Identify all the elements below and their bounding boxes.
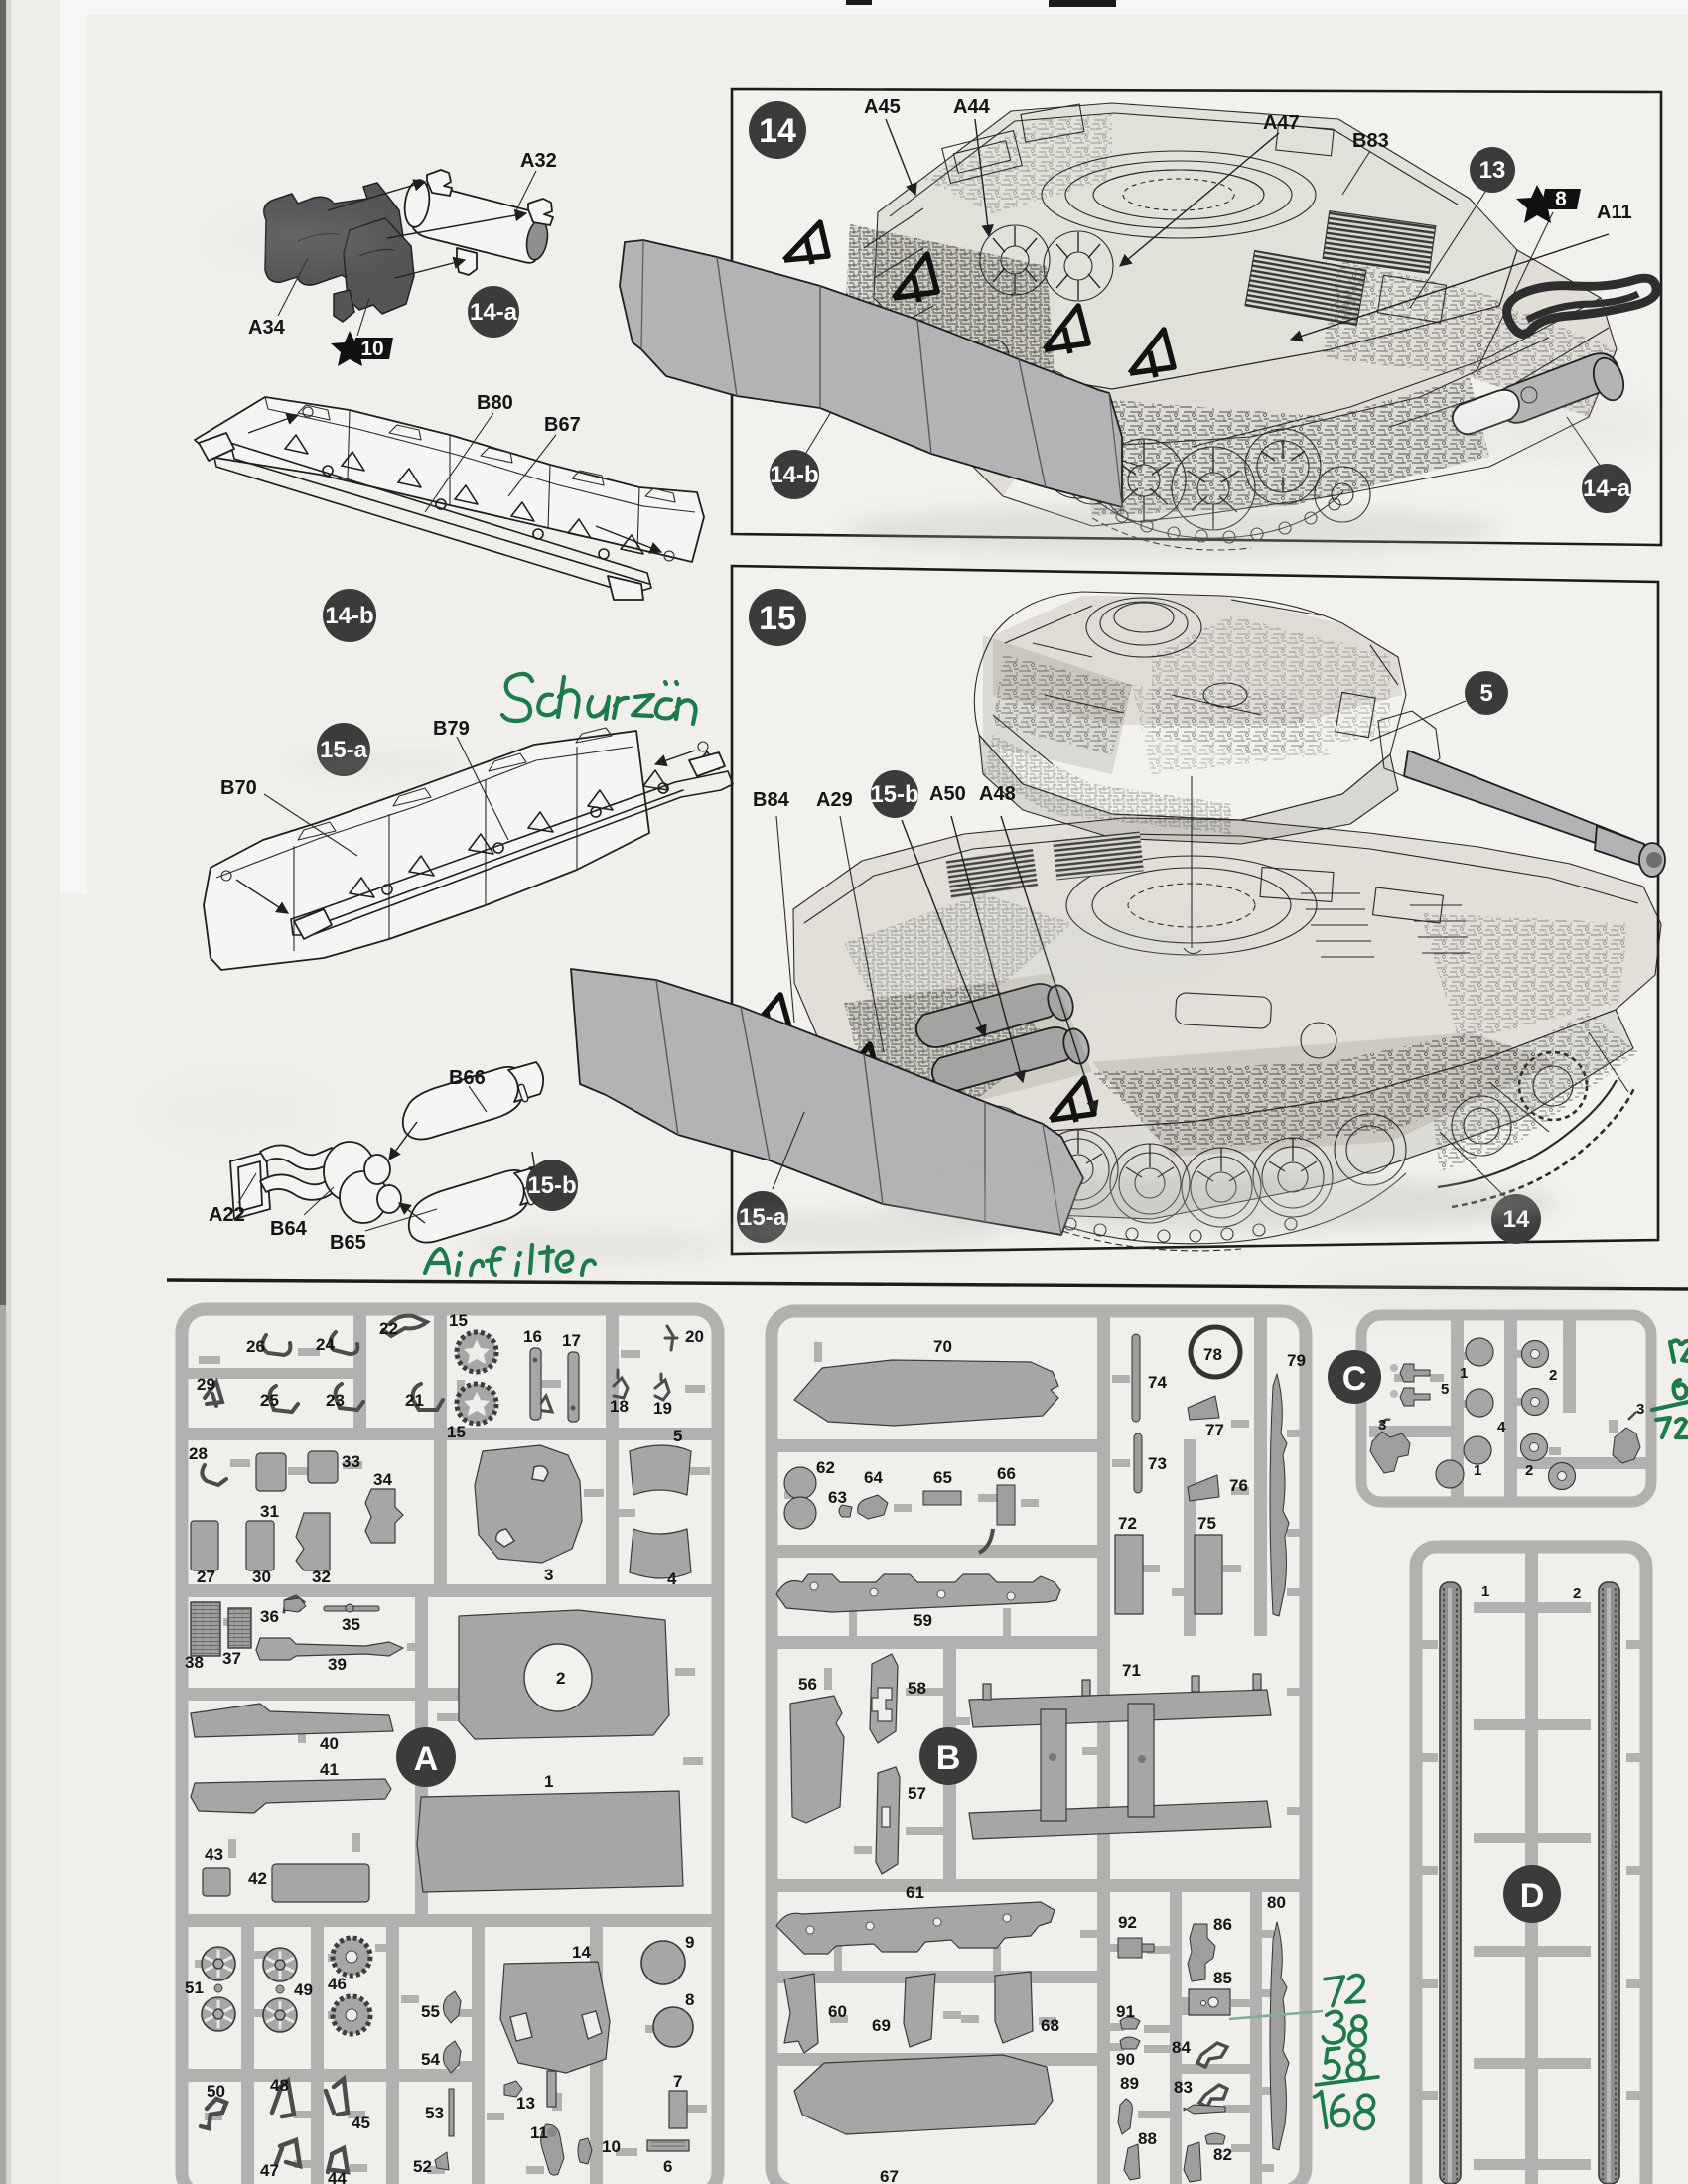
svg-text:57: 57 — [908, 1784, 926, 1803]
svg-text:77: 77 — [1205, 1421, 1224, 1439]
svg-text:2: 2 — [1573, 1585, 1581, 1602]
svg-text:B84: B84 — [753, 789, 790, 811]
svg-text:15: 15 — [759, 600, 796, 637]
svg-text:22: 22 — [379, 1319, 398, 1338]
svg-text:28: 28 — [189, 1444, 208, 1463]
svg-text:60: 60 — [828, 2002, 847, 2021]
svg-text:A11: A11 — [1597, 202, 1632, 223]
svg-text:42: 42 — [248, 1869, 267, 1888]
svg-text:88: 88 — [1138, 2129, 1157, 2148]
svg-text:67: 67 — [880, 2167, 899, 2184]
svg-text:A45: A45 — [864, 96, 901, 118]
svg-text:B65: B65 — [330, 1232, 366, 1254]
svg-text:52: 52 — [413, 2157, 432, 2176]
svg-text:68: 68 — [1041, 2016, 1059, 2035]
svg-text:4: 4 — [667, 1570, 677, 1588]
svg-text:32: 32 — [312, 1568, 331, 1586]
svg-text:82: 82 — [1213, 2145, 1232, 2164]
svg-text:10: 10 — [360, 338, 383, 360]
svg-text:61: 61 — [906, 1883, 924, 1902]
svg-text:15-b: 15-b — [527, 1172, 576, 1199]
svg-text:A29: A29 — [816, 789, 853, 811]
svg-text:35: 35 — [342, 1615, 360, 1634]
svg-text:B67: B67 — [544, 414, 581, 436]
svg-text:75: 75 — [1197, 1514, 1216, 1533]
svg-text:6: 6 — [663, 2157, 672, 2176]
svg-text:71: 71 — [1122, 1661, 1141, 1680]
svg-text:83: 83 — [1174, 2078, 1193, 2097]
svg-text:9: 9 — [685, 1933, 694, 1952]
svg-text:1: 1 — [1481, 1583, 1489, 1600]
svg-text:14-a: 14-a — [1583, 476, 1631, 502]
svg-text:A: A — [414, 1740, 439, 1778]
svg-text:53: 53 — [425, 2104, 444, 2122]
svg-text:15: 15 — [447, 1423, 466, 1441]
svg-text:36: 36 — [260, 1607, 279, 1626]
svg-text:14-a: 14-a — [470, 299, 518, 326]
svg-text:A50: A50 — [929, 783, 966, 805]
svg-text:16: 16 — [523, 1327, 542, 1346]
svg-text:2: 2 — [1549, 1367, 1557, 1384]
svg-text:4: 4 — [1497, 1419, 1506, 1435]
svg-text:3: 3 — [1636, 1401, 1644, 1418]
svg-text:76: 76 — [1229, 1476, 1248, 1495]
svg-text:79: 79 — [1287, 1351, 1306, 1370]
svg-text:B79: B79 — [433, 718, 470, 740]
svg-text:70: 70 — [933, 1337, 952, 1356]
svg-text:29: 29 — [197, 1375, 215, 1394]
svg-text:3: 3 — [544, 1566, 553, 1584]
svg-text:B: B — [936, 1739, 961, 1777]
svg-text:B80: B80 — [477, 392, 513, 414]
svg-text:80: 80 — [1267, 1893, 1286, 1912]
svg-text:54: 54 — [421, 2050, 440, 2069]
svg-text:A44: A44 — [953, 96, 991, 118]
svg-text:85: 85 — [1213, 1969, 1232, 1987]
svg-text:14: 14 — [759, 112, 796, 150]
svg-text:B83: B83 — [1352, 130, 1389, 152]
svg-text:C: C — [1342, 1360, 1367, 1398]
svg-text:27: 27 — [197, 1568, 215, 1586]
svg-text:3: 3 — [1378, 1417, 1386, 1433]
svg-text:51: 51 — [185, 1979, 204, 1997]
svg-text:21: 21 — [405, 1391, 424, 1410]
svg-text:92: 92 — [1118, 1913, 1137, 1932]
svg-text:11: 11 — [530, 2123, 548, 2142]
svg-text:46: 46 — [328, 1975, 347, 1993]
svg-text:5: 5 — [1441, 1381, 1449, 1398]
svg-text:65: 65 — [933, 1468, 952, 1487]
svg-text:D: D — [1520, 1877, 1545, 1915]
svg-text:24: 24 — [316, 1335, 335, 1354]
svg-text:43: 43 — [205, 1845, 223, 1864]
svg-text:86: 86 — [1213, 1915, 1232, 1934]
svg-text:63: 63 — [828, 1488, 847, 1507]
svg-text:A22: A22 — [209, 1204, 245, 1226]
svg-text:2: 2 — [556, 1669, 565, 1688]
svg-text:13: 13 — [1479, 157, 1506, 184]
svg-text:14-b: 14-b — [325, 603, 373, 629]
svg-text:40: 40 — [320, 1734, 339, 1753]
svg-text:14: 14 — [572, 1943, 591, 1962]
svg-text:A34: A34 — [248, 317, 286, 339]
svg-text:26: 26 — [246, 1337, 265, 1356]
svg-text:2: 2 — [1525, 1462, 1533, 1479]
svg-text:55: 55 — [421, 2002, 440, 2021]
svg-text:20: 20 — [685, 1327, 704, 1346]
svg-text:45: 45 — [352, 2114, 370, 2132]
svg-text:90: 90 — [1116, 2050, 1135, 2069]
svg-text:41: 41 — [320, 1760, 339, 1779]
svg-text:5: 5 — [673, 1427, 682, 1445]
svg-text:38: 38 — [185, 1653, 204, 1672]
svg-text:15: 15 — [449, 1311, 468, 1330]
svg-text:1: 1 — [1474, 1462, 1481, 1479]
svg-text:10: 10 — [602, 2137, 621, 2156]
svg-text:49: 49 — [294, 1980, 313, 1999]
svg-text:14-b: 14-b — [770, 462, 818, 488]
svg-text:13: 13 — [516, 2094, 535, 2113]
svg-text:73: 73 — [1148, 1454, 1167, 1473]
svg-text:A32: A32 — [520, 150, 557, 172]
svg-text:59: 59 — [914, 1611, 932, 1630]
svg-text:31: 31 — [260, 1502, 279, 1521]
svg-text:58: 58 — [908, 1679, 926, 1698]
svg-text:84: 84 — [1172, 2038, 1191, 2057]
svg-text:48: 48 — [270, 2076, 289, 2095]
svg-text:A47: A47 — [1263, 112, 1300, 134]
svg-text:69: 69 — [872, 2016, 891, 2035]
svg-text:8: 8 — [1555, 188, 1567, 210]
svg-text:15-b: 15-b — [870, 781, 918, 808]
svg-text:1: 1 — [544, 1772, 553, 1791]
svg-text:44: 44 — [328, 2169, 347, 2184]
svg-text:17: 17 — [562, 1331, 581, 1350]
svg-text:91: 91 — [1116, 2002, 1135, 2021]
svg-text:30: 30 — [252, 1568, 271, 1586]
svg-text:37: 37 — [222, 1649, 241, 1668]
svg-text:19: 19 — [653, 1399, 672, 1418]
svg-text:62: 62 — [816, 1458, 835, 1477]
svg-text:5: 5 — [1479, 680, 1492, 707]
svg-text:66: 66 — [997, 1464, 1016, 1483]
svg-text:64: 64 — [864, 1468, 883, 1487]
svg-text:A48: A48 — [979, 783, 1016, 805]
svg-text:74: 74 — [1148, 1373, 1167, 1392]
svg-text:B66: B66 — [449, 1067, 486, 1089]
svg-text:34: 34 — [373, 1470, 392, 1489]
svg-text:39: 39 — [328, 1655, 347, 1674]
svg-text:B70: B70 — [220, 777, 257, 799]
svg-text:18: 18 — [610, 1397, 629, 1416]
svg-text:78: 78 — [1203, 1345, 1222, 1364]
svg-text:25: 25 — [260, 1391, 279, 1410]
svg-text:7: 7 — [673, 2072, 682, 2091]
svg-text:23: 23 — [326, 1391, 345, 1410]
svg-text:47: 47 — [260, 2161, 279, 2180]
svg-text:72: 72 — [1118, 1514, 1137, 1533]
svg-text:B64: B64 — [270, 1218, 308, 1240]
svg-text:1: 1 — [1460, 1365, 1468, 1382]
svg-text:56: 56 — [798, 1675, 817, 1694]
svg-text:50: 50 — [207, 2082, 225, 2101]
svg-text:33: 33 — [342, 1452, 360, 1471]
svg-text:8: 8 — [685, 1990, 694, 2009]
svg-text:89: 89 — [1120, 2074, 1139, 2093]
